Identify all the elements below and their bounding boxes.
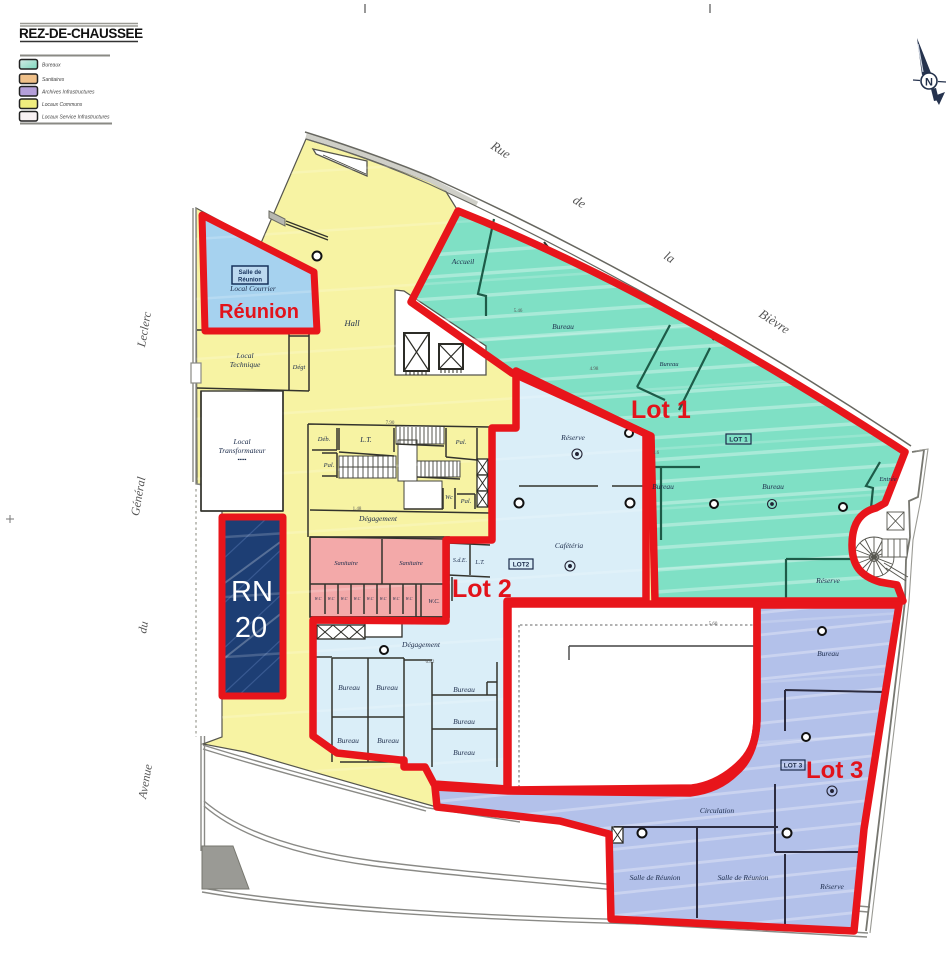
svg-text:Bureau: Bureau <box>817 649 839 658</box>
svg-text:Pal.: Pal. <box>460 498 472 505</box>
svg-text:Hall: Hall <box>343 318 360 328</box>
svg-text:Sanitaires: Sanitaires <box>42 77 65 83</box>
svg-text:Réunion: Réunion <box>219 301 299 323</box>
svg-text:LOT2: LOT2 <box>513 562 530 569</box>
svg-text:Sanitaire: Sanitaire <box>399 560 423 567</box>
svg-text:▪▪▪▪▪: ▪▪▪▪▪ <box>238 458 247 463</box>
svg-text:du: du <box>135 620 151 634</box>
svg-text:L.T.: L.T. <box>474 560 484 566</box>
svg-text:Réunion: Réunion <box>238 278 262 284</box>
svg-text:Archives Infrastructures: Archives Infrastructures <box>41 90 95 96</box>
svg-text:Déb.: Déb. <box>317 436 331 443</box>
svg-text:Réserve: Réserve <box>819 882 844 891</box>
svg-text:REZ-DE-CHAUSSEE: REZ-DE-CHAUSSEE <box>19 26 143 41</box>
svg-text:Bureau: Bureau <box>453 748 475 757</box>
svg-text:Lot 2: Lot 2 <box>452 575 512 603</box>
svg-text:Réserve: Réserve <box>560 433 585 442</box>
svg-text:LOT 3: LOT 3 <box>784 763 803 770</box>
svg-text:1.48: 1.48 <box>353 507 362 512</box>
svg-text:Bureau: Bureau <box>762 482 784 491</box>
svg-text:Transformateur: Transformateur <box>218 446 265 455</box>
svg-text:W.C: W.C <box>406 596 413 601</box>
svg-text:Bureau: Bureau <box>338 683 360 692</box>
svg-text:Entrée: Entrée <box>878 476 896 483</box>
svg-text:N: N <box>925 77 933 89</box>
svg-text:W.C.: W.C. <box>428 599 439 605</box>
svg-text:W.C: W.C <box>328 596 335 601</box>
svg-text:Locaux Communs: Locaux Communs <box>42 102 83 108</box>
svg-text:W.C: W.C <box>393 596 400 601</box>
svg-text:Salle de: Salle de <box>239 270 262 276</box>
svg-text:Local Courrier: Local Courrier <box>229 284 276 293</box>
svg-text:Dégagement: Dégagement <box>401 640 441 649</box>
svg-text:Technique: Technique <box>230 360 261 369</box>
svg-text:Pal.: Pal. <box>323 462 335 469</box>
svg-text:Local: Local <box>235 351 253 360</box>
svg-text:Bureau: Bureau <box>377 736 399 745</box>
svg-text:LOT 1: LOT 1 <box>729 437 748 444</box>
svg-text:Lot 3: Lot 3 <box>806 757 863 784</box>
svg-text:Circulation: Circulation <box>700 806 735 815</box>
svg-text:Dégagement: Dégagement <box>358 514 398 523</box>
svg-text:0.82: 0.82 <box>426 660 435 665</box>
svg-text:Bureau: Bureau <box>652 482 674 491</box>
svg-text:5.46: 5.46 <box>514 309 523 314</box>
svg-text:S.d.E.: S.d.E. <box>453 558 467 564</box>
svg-text:Accueil: Accueil <box>451 257 475 266</box>
svg-text:Bureau: Bureau <box>453 685 475 694</box>
svg-text:Pal.: Pal. <box>455 439 467 446</box>
svg-text:7.90: 7.90 <box>386 421 395 426</box>
svg-text:1.6: 1.6 <box>653 451 660 456</box>
svg-text:Bureau: Bureau <box>660 361 680 368</box>
svg-text:W.C: W.C <box>354 596 361 601</box>
svg-text:W.C: W.C <box>315 596 322 601</box>
svg-text:W.C: W.C <box>341 596 348 601</box>
svg-text:Bureau: Bureau <box>337 736 359 745</box>
svg-text:Bureau: Bureau <box>453 717 475 726</box>
svg-text:Bureaux: Bureaux <box>42 63 61 69</box>
svg-text:20: 20 <box>235 612 267 644</box>
svg-text:Bureau: Bureau <box>552 322 574 331</box>
svg-text:Lot 1: Lot 1 <box>631 396 691 424</box>
svg-text:Local: Local <box>232 437 250 446</box>
svg-text:W.C: W.C <box>380 596 387 601</box>
svg-text:Locaux Service Infrastructures: Locaux Service Infrastructures <box>42 115 110 121</box>
svg-text:Réserve: Réserve <box>815 576 840 585</box>
svg-text:Sanitaire: Sanitaire <box>334 560 358 567</box>
svg-text:4.98: 4.98 <box>590 367 599 372</box>
svg-text:Cafétéria: Cafétéria <box>555 541 584 550</box>
svg-text:Dégt: Dégt <box>292 364 306 371</box>
svg-text:L.T.: L.T. <box>359 435 372 444</box>
svg-text:5.60: 5.60 <box>709 622 718 627</box>
svg-text:W.C: W.C <box>367 596 374 601</box>
svg-text:Salle de Réunion: Salle de Réunion <box>718 873 769 882</box>
svg-text:Bureau: Bureau <box>376 683 398 692</box>
svg-text:Wc: Wc <box>445 495 453 501</box>
svg-text:Salle de Réunion: Salle de Réunion <box>630 873 681 882</box>
svg-text:RN: RN <box>231 576 273 608</box>
